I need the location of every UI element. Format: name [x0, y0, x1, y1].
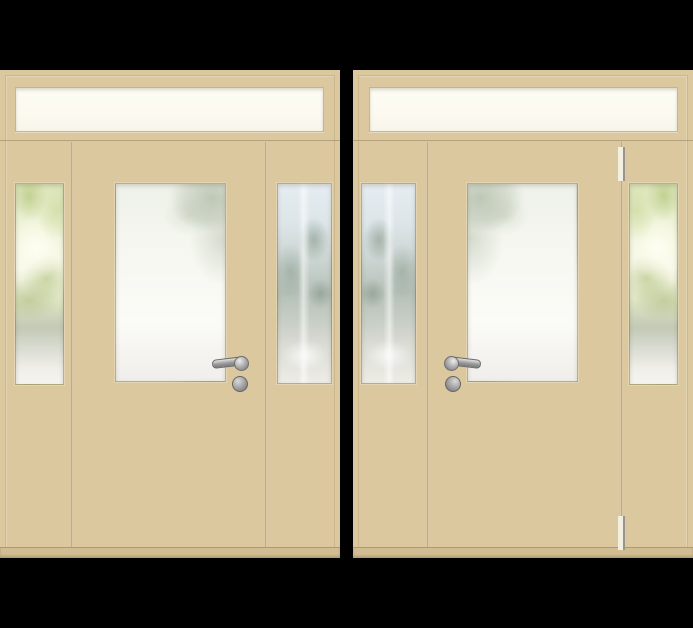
transom-window — [15, 87, 324, 132]
sidelight-glass-foliage — [15, 183, 64, 385]
door-glass — [467, 183, 578, 382]
door-handle-rosette — [234, 356, 249, 371]
bottom-rail — [0, 547, 340, 558]
bottom-rail — [353, 547, 693, 558]
transom-frame-joint — [353, 140, 693, 142]
transom-frame-joint — [0, 140, 340, 142]
left-sidelight-joint — [71, 142, 73, 547]
door-lock-knob — [445, 376, 461, 392]
right-sidelight-joint — [265, 142, 267, 547]
left-sidelight-joint — [426, 142, 428, 547]
hinge-bottom-icon — [618, 516, 625, 550]
sidelight-glass-foliage — [629, 183, 678, 385]
sidelight-glass-street — [361, 183, 416, 384]
door-lock-knob — [232, 376, 248, 392]
hinge-top-icon — [618, 147, 625, 181]
right-sidelight-joint — [620, 142, 622, 547]
door-unit-right[interactable] — [353, 70, 693, 557]
door-unit-left[interactable] — [0, 70, 340, 557]
transom-window — [369, 87, 678, 132]
product-render-stage — [0, 0, 693, 628]
door-glass — [115, 183, 226, 382]
door-handle-rosette — [444, 356, 459, 371]
sidelight-glass-street — [277, 183, 332, 384]
